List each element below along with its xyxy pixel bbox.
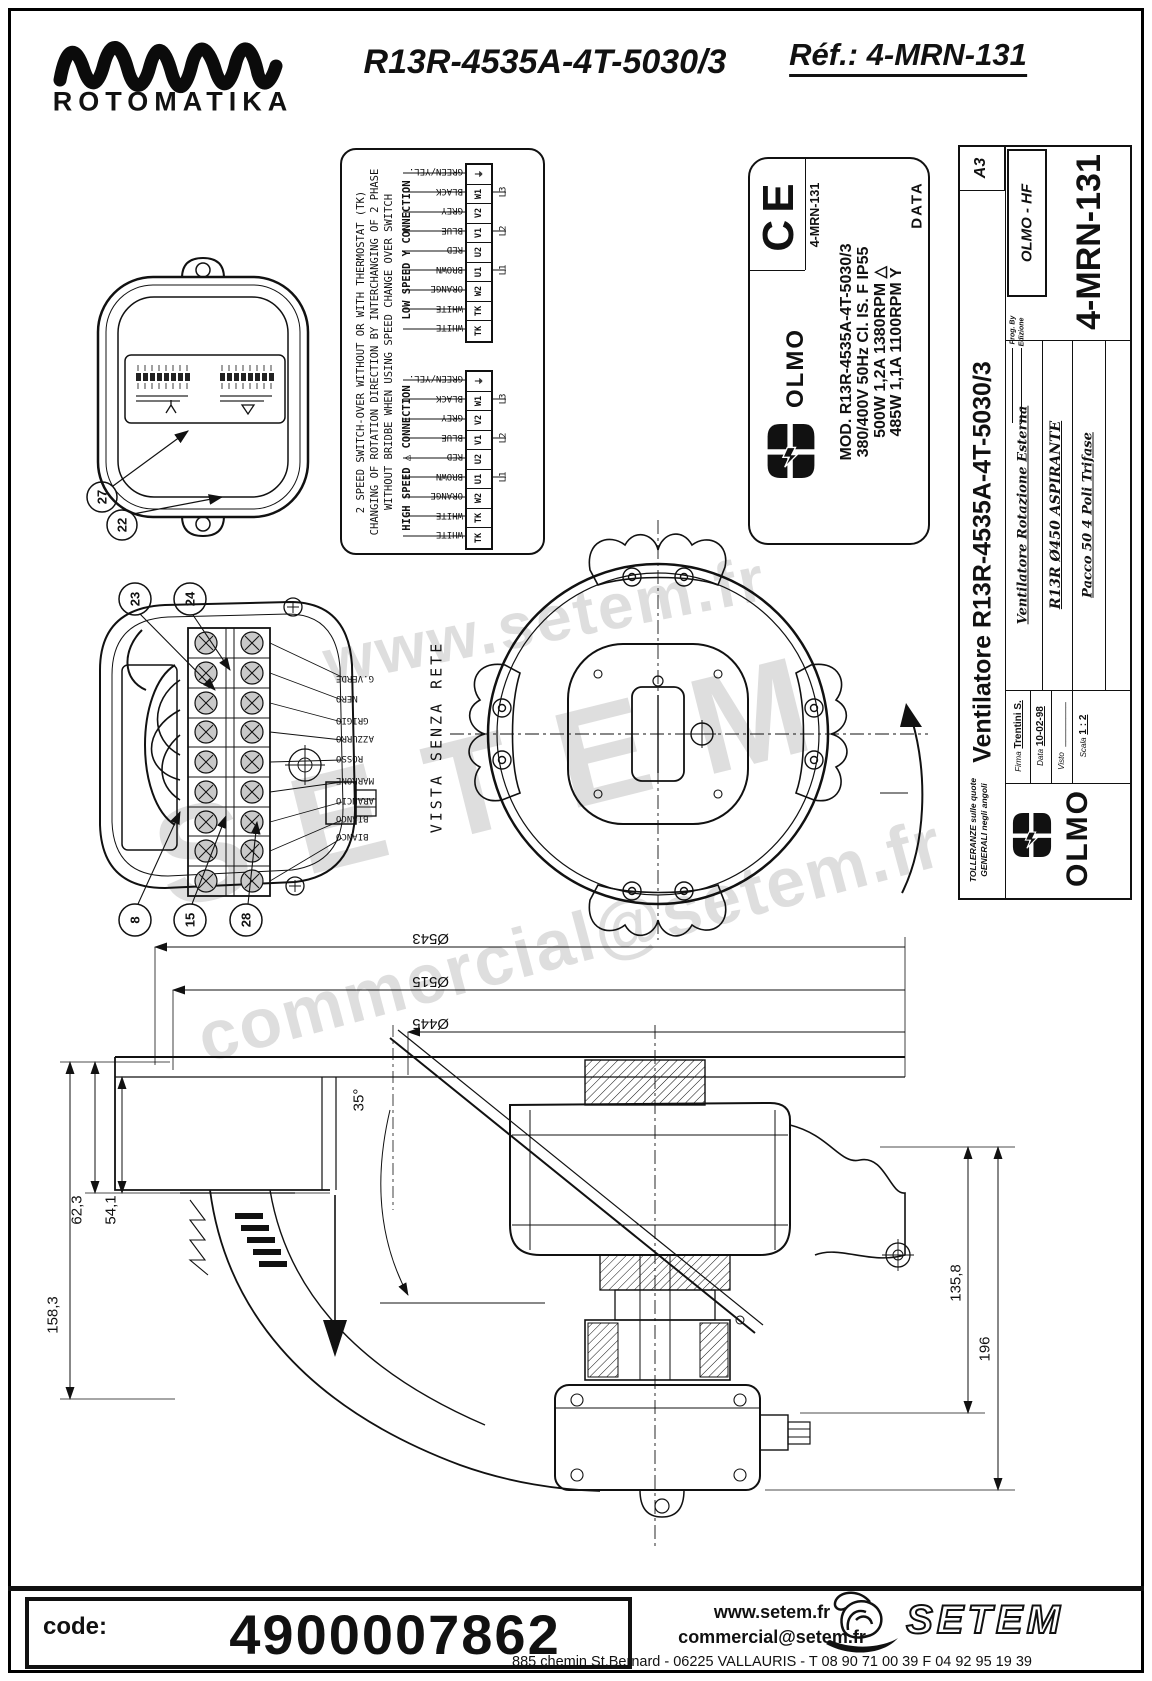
terminal-label: U1 (474, 267, 484, 277)
plate-data-word: DATA (910, 181, 925, 228)
phase-label: L1 (500, 265, 509, 276)
wire-color: BLACK (403, 186, 463, 195)
wire-color: WHITE (403, 322, 463, 331)
wire-label: ARANCIO (336, 795, 392, 804)
scale-value: 1 : 2 (1078, 715, 1089, 735)
terminal-label: W1 (474, 396, 484, 406)
wire-label: BIANCO (336, 831, 392, 840)
wire-label: ROSSO (336, 753, 392, 762)
wire-color: GREY (403, 205, 463, 214)
drawing-sheet: www.setem.fr SETEM commercial@setem.fr R… (0, 0, 1152, 1681)
tb-line (1042, 340, 1043, 690)
description-row2: R13R Ø450 ASPIRANTE (1049, 421, 1063, 609)
sheet-format: A3 (973, 158, 989, 178)
scale-label: Scala (1079, 737, 1088, 757)
dim-angle-35: 35° (352, 1089, 367, 1112)
wire-label: MARRONE (336, 775, 392, 784)
date-row: Data 10-02-98 (1036, 706, 1046, 766)
wire-color: BLUE (403, 225, 463, 234)
olmo-logo-icon (1010, 802, 1054, 868)
terminal-box-closed-drawing (70, 245, 335, 545)
wire-color: ORANGE (403, 283, 463, 292)
tb-line (1072, 690, 1073, 783)
title-block-ref: 4-MRN-131 (1072, 154, 1106, 330)
terminal-label: W1 (474, 189, 484, 199)
terminal-label: U1 (474, 474, 484, 484)
brand-name: ROTOMATIKA (53, 89, 293, 116)
phase-label: L2 (500, 433, 509, 444)
blank-line (1012, 348, 1013, 423)
olmo-wordmark: OLMO (784, 328, 808, 408)
firma-value: Trentini S. (1013, 700, 1024, 748)
fan-front-view-drawing (450, 515, 930, 945)
wire-color: BLACK (403, 393, 463, 402)
wire-color: BLUE (403, 432, 463, 441)
setem-wordmark: SETEM (906, 1600, 1064, 1640)
plate-rating-delta: 500W 1,2A 1380RPM △ (873, 266, 889, 438)
tb-line (1005, 145, 1006, 900)
terminal-label: V1 (474, 228, 484, 238)
terminal-strip-low: ⏚ W1 V2 V1 U2 U1 W2 TK TK (465, 163, 493, 343)
code-value: 4900007862 (229, 1607, 560, 1663)
plate-model: MOD. R13R-4535A-4T-5030/3 (839, 244, 855, 461)
olmo-logo-icon (764, 420, 818, 482)
balloon-24: 24 (184, 592, 197, 606)
ce-mark: CE (757, 176, 801, 251)
date-label: Data (1036, 749, 1045, 766)
signature-row: Firma Trentini S. (1014, 700, 1024, 772)
wire-label: BIANCO (336, 813, 392, 822)
phase-label: L2 (500, 226, 509, 237)
balloon-23: 23 (129, 592, 142, 606)
reference-number: Réf.: 4-MRN-131 (789, 39, 1027, 77)
firma-label: Firma (1014, 751, 1023, 771)
terminal-label: W2 (474, 493, 484, 503)
phase-label: L3 (500, 394, 509, 405)
terminal-label: TK (474, 326, 484, 336)
tb-line (1105, 340, 1106, 690)
visto-label: Visto (1057, 752, 1066, 770)
terminal-label: U2 (474, 247, 484, 257)
code-label: code: (43, 1615, 107, 1639)
tb-line (1005, 783, 1132, 784)
wire-color: RED (403, 451, 463, 460)
setem-bird-icon (812, 1586, 902, 1658)
description-row3: Pacco 50 4 Poli Trifase (1082, 432, 1095, 598)
wire-color: GREY (403, 412, 463, 421)
date-value: 10-02-98 (1035, 706, 1046, 746)
wire-color: GREEN/YEL. (403, 373, 463, 382)
visto-row: Visto ________ (1057, 702, 1067, 770)
footer-separator (8, 1586, 1144, 1591)
fan-side-view-drawing (40, 925, 1050, 1565)
plate-divider-v (805, 157, 806, 270)
terminal-label: V2 (474, 208, 484, 218)
wire-label: NERO (336, 693, 392, 702)
balloon-27: 27 (96, 490, 109, 504)
plate-ref: 4-MRN-131 (809, 183, 822, 248)
tb-line (1051, 690, 1052, 783)
terminal-label: V2 (474, 415, 484, 425)
terminal-label: ⏚ (473, 170, 485, 179)
wire-label: G.VERDE (336, 673, 392, 682)
phase-label: L1 (500, 472, 509, 483)
page-title: R13R-4535A-4T-5030/3 (364, 45, 727, 79)
dim-diameter-543: Ø543 (393, 931, 449, 946)
terminal-label: TK (474, 306, 484, 316)
description-row1: Ventilatore Rotazione Esterna (1017, 406, 1030, 625)
balloon-22: 22 (116, 518, 129, 532)
wire-color: ORANGE (403, 490, 463, 499)
footer-address: 885 chemin St.Bernard - 06225 VALLAURIS … (512, 1655, 1032, 1670)
scale-row: Scala 1 : 2 (1079, 715, 1089, 758)
front-view-caption: VISTA SENZA RETE (430, 641, 445, 834)
terminal-label: V1 (474, 435, 484, 445)
terminal-label: ⏚ (473, 377, 485, 386)
edition-label: Edizione (1019, 318, 1026, 347)
terminal-label: U2 (474, 454, 484, 464)
wire-color: RED (403, 244, 463, 253)
dim-158-3: 158,3 (46, 1296, 61, 1334)
tb-line (1005, 340, 1132, 341)
tb-line (1072, 340, 1073, 690)
terminal-label: W2 (474, 286, 484, 296)
dim-54-1: 54,1 (104, 1195, 119, 1224)
dim-196: 196 (978, 1336, 993, 1361)
olmo-wordmark: OLMO (1063, 789, 1093, 887)
company-name: OLMO - HF (1020, 184, 1035, 262)
dim-62-3: 62,3 (70, 1195, 85, 1224)
wire-label: AZZURRO (336, 733, 392, 742)
wire-color: GREEN/YEL. (403, 166, 463, 175)
phase-label: L3 (500, 187, 509, 198)
wire-color: WHITE (403, 303, 463, 312)
rotomatika-logo-icon (52, 30, 302, 92)
balloon-8: 8 (129, 916, 142, 923)
dim-diameter-515: Ø515 (393, 974, 449, 989)
plate-electrical: 380/400V 50Hz Cl. IS. F IP55 (856, 247, 872, 458)
tolerances-line1: TOLLERANZE sulle quote (969, 778, 978, 882)
dim-diameter-445: Ø445 (393, 1016, 449, 1031)
wire-color: BROWN (403, 264, 463, 273)
tb-line (1030, 690, 1031, 783)
plate-rating-star: 485W 1,1A 1100RPM Y (889, 268, 905, 437)
wire-label: GRIGIO (336, 715, 392, 724)
tolerances-line2: GENERALI negli angoli (980, 783, 989, 877)
plate-divider-h (748, 270, 805, 271)
drawing-title: Ventilatore R13R-4535A-4T-5030/3 (971, 361, 996, 763)
tb-line (1005, 690, 1132, 691)
wire-color: BROWN (403, 471, 463, 480)
dim-135-8: 135,8 (949, 1264, 964, 1302)
